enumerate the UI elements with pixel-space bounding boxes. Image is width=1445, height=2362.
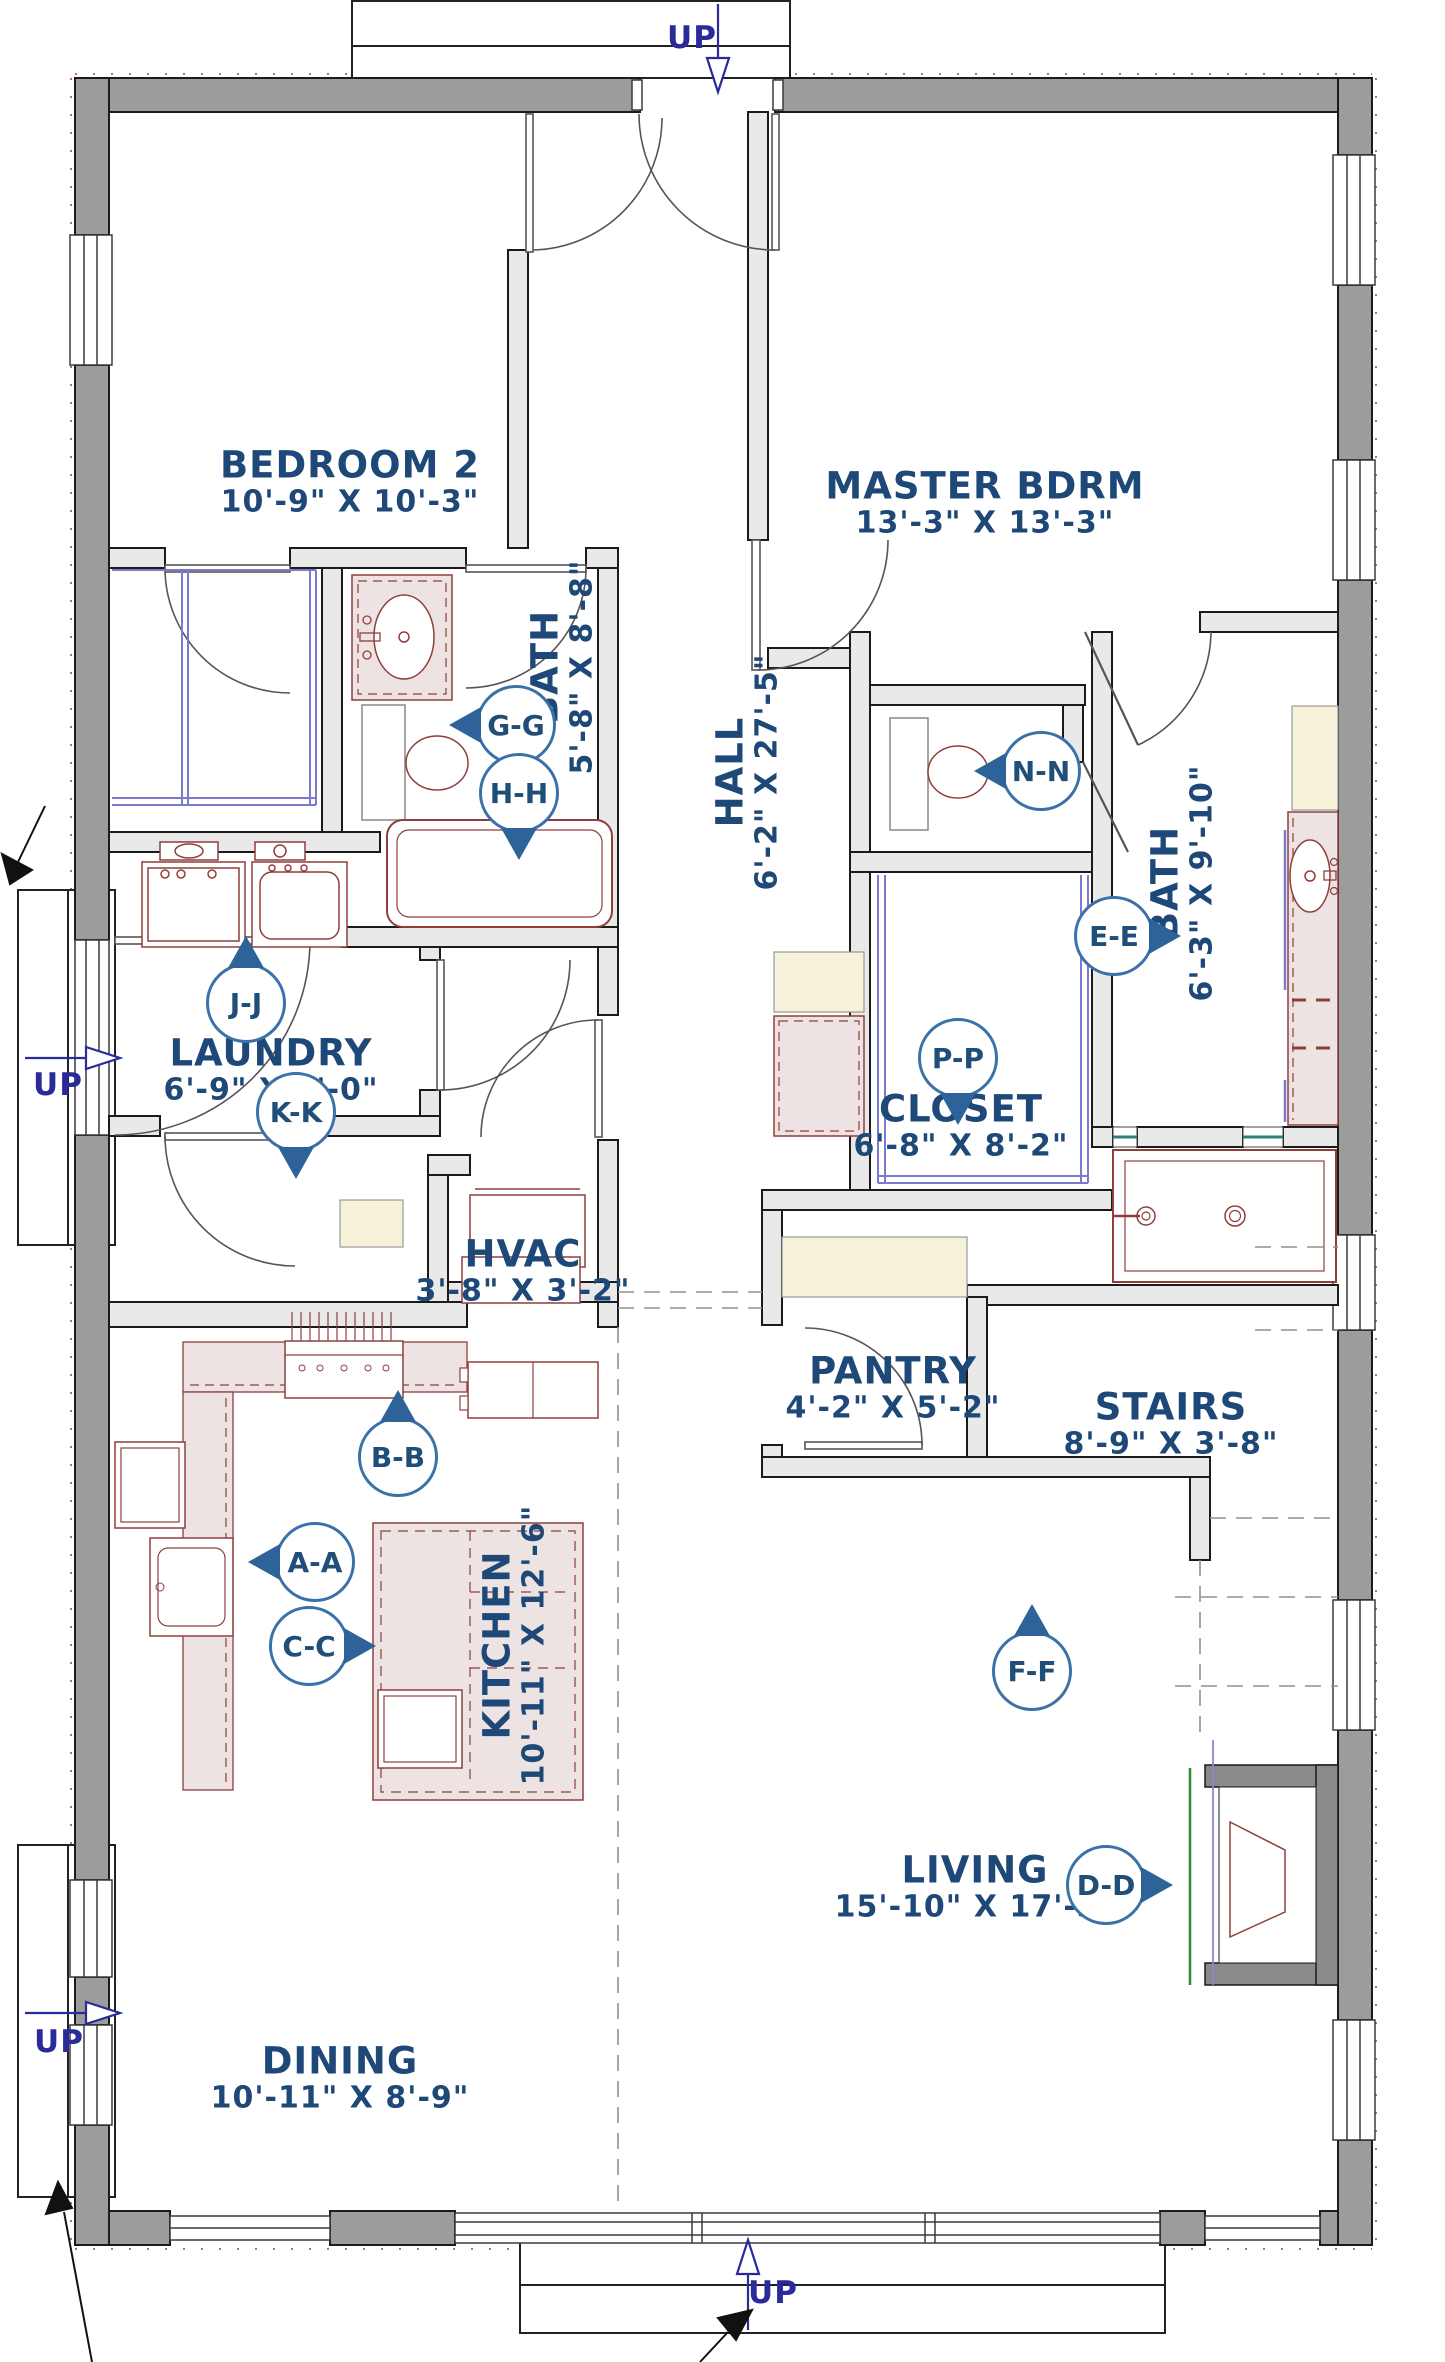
- section-marker-hh: H-H: [479, 753, 559, 833]
- marker-label: F-F: [1007, 1655, 1056, 1688]
- marker-label: J-J: [230, 987, 262, 1020]
- section-marker-cc: C-C: [269, 1606, 349, 1686]
- section-marker-ee: E-E: [1074, 896, 1154, 976]
- room-label-bedroom-2: BEDROOM 2 10'-9" X 10'-3": [220, 444, 480, 519]
- up-label-side-steps-2: UP: [34, 2024, 84, 2060]
- section-arrow-up-icon: [228, 936, 264, 968]
- room-name: LAUNDRY: [163, 1032, 378, 1073]
- section-marker-nn: N-N: [1001, 731, 1081, 811]
- room-dims: 8'-9" X 3'-8": [1063, 1428, 1278, 1462]
- room-dims: 10'-11" X 12'-6": [518, 1505, 552, 1786]
- room-dims: 13'-3" X 13'-3": [825, 507, 1144, 541]
- section-marker-aa: A-A: [275, 1522, 355, 1602]
- room-name: HVAC: [415, 1233, 630, 1274]
- room-label-master-bath: BATH 6'-3" X 9'-10": [1144, 765, 1219, 1002]
- section-arrow-left-icon: [974, 753, 1006, 789]
- laundry-fixtures: [142, 842, 347, 947]
- room-dims: 6'-8" X 8'-2": [853, 1130, 1068, 1164]
- section-marker-dd: D-D: [1066, 1845, 1146, 1925]
- room-label-hvac: HVAC 3'-8" X 3'-2": [415, 1233, 630, 1308]
- room-label-kitchen: KITCHEN 10'-11" X 12'-6": [476, 1505, 551, 1786]
- room-name: KITCHEN: [476, 1505, 517, 1786]
- section-arrow-left-icon: [449, 707, 481, 743]
- section-marker-ff: F-F: [992, 1631, 1072, 1711]
- section-marker-jj: J-J: [206, 963, 286, 1043]
- marker-label: N-N: [1012, 755, 1071, 788]
- room-dims: 5'-8" X 8'-8": [566, 559, 600, 774]
- room-label-hall: HALL 6'-2" X 27'-5": [709, 654, 784, 891]
- marker-label: P-P: [932, 1042, 984, 1075]
- marker-label: H-H: [490, 777, 549, 810]
- room-label-master-bdrm: MASTER BDRM 13'-3" X 13'-3": [825, 465, 1144, 540]
- marker-label: E-E: [1089, 920, 1139, 953]
- room-dims: 6'-2" X 27'-5": [751, 654, 785, 891]
- room-name: PANTRY: [785, 1350, 1000, 1391]
- room-label-dining: DINING 10'-11" X 8'-9": [211, 2040, 470, 2115]
- section-arrow-down-icon: [501, 828, 537, 860]
- marker-label: K-K: [270, 1096, 323, 1129]
- room-name: DINING: [211, 2040, 470, 2081]
- room-dims: 10'-9" X 10'-3": [220, 486, 480, 520]
- marker-label: G-G: [487, 709, 545, 742]
- up-label-front-steps: UP: [748, 2275, 798, 2311]
- entry-steps: [18, 1, 1165, 2333]
- up-label-side-steps: UP: [33, 1067, 83, 1103]
- section-marker-bb: B-B: [358, 1417, 438, 1497]
- marker-label: C-C: [282, 1630, 335, 1663]
- room-dims: 6'-3" X 9'-10": [1186, 765, 1220, 1002]
- section-arrow-up-icon: [1014, 1604, 1050, 1636]
- section-marker-kk: K-K: [256, 1072, 336, 1152]
- marker-label: D-D: [1077, 1869, 1136, 1902]
- room-name: HALL: [709, 654, 750, 891]
- section-marker-pp: P-P: [918, 1018, 998, 1098]
- marker-label: A-A: [288, 1546, 343, 1579]
- section-arrow-right-icon: [1141, 1867, 1173, 1903]
- section-arrow-right-icon: [1149, 918, 1181, 954]
- up-arrows: [25, 4, 759, 2330]
- room-label-stairs: STAIRS 8'-9" X 3'-8": [1063, 1386, 1278, 1461]
- room-dims: 10'-11" X 8'-9": [211, 2082, 470, 2116]
- up-label-top-entry: UP: [667, 20, 717, 56]
- section-arrow-down-icon: [278, 1147, 314, 1179]
- floorplan-drawing: [0, 0, 1445, 2362]
- room-dims: 3'-8" X 3'-2": [415, 1275, 630, 1309]
- section-arrow-down-icon: [940, 1093, 976, 1125]
- room-name: BEDROOM 2: [220, 444, 480, 485]
- room-name: MASTER BDRM: [825, 465, 1144, 506]
- fireplace: [1190, 1740, 1338, 1985]
- marker-label: B-B: [371, 1441, 425, 1474]
- section-arrow-up-icon: [380, 1390, 416, 1422]
- room-dims: 4'-2" X 5'-2": [785, 1392, 1000, 1426]
- section-arrow-left-icon: [248, 1544, 280, 1580]
- room-name: STAIRS: [1063, 1386, 1278, 1427]
- room-label-pantry: PANTRY 4'-2" X 5'-2": [785, 1350, 1000, 1425]
- section-arrow-right-icon: [344, 1628, 376, 1664]
- floor-plan-canvas: BEDROOM 2 10'-9" X 10'-3" MASTER BDRM 13…: [0, 0, 1445, 2362]
- room-name: BATH: [1144, 765, 1185, 1002]
